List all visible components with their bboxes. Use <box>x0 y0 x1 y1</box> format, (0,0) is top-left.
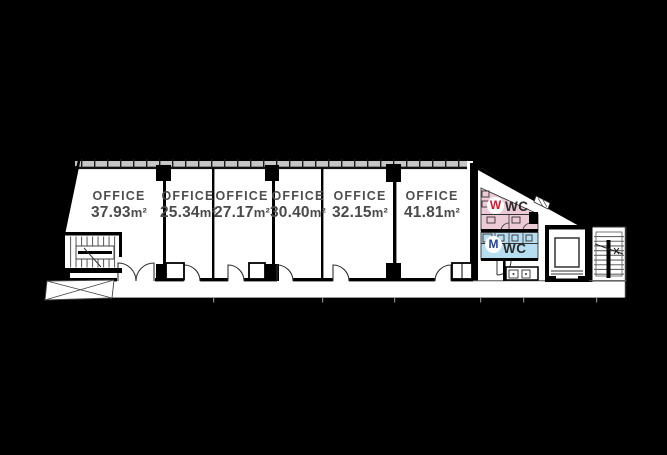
floor-plan: OFFICE 37.93m² OFFICE 25.34m² OFFICE 27.… <box>0 0 667 455</box>
womens-wc-label: WC <box>505 199 529 214</box>
mens-wc-label: WC <box>503 241 527 256</box>
floorplan-drawing <box>0 0 667 455</box>
womens-wc-badge: W <box>487 197 504 214</box>
void-area <box>45 280 114 300</box>
floor-base <box>63 161 626 298</box>
elevator <box>545 225 589 282</box>
mens-wc-badge: M <box>485 236 502 253</box>
